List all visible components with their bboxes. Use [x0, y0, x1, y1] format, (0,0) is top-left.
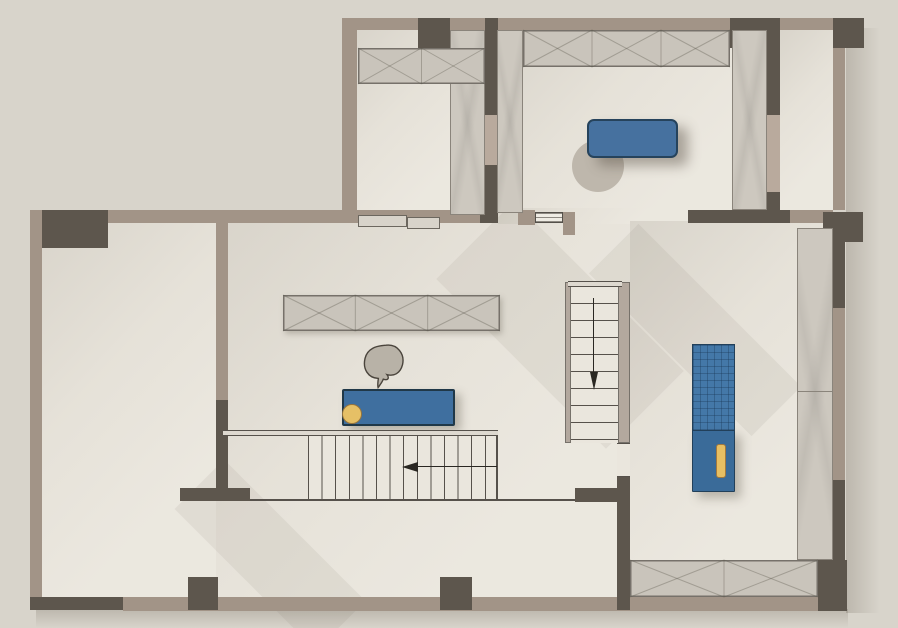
wall-left: [30, 210, 42, 610]
wall-bedroom-bottom-dark: [688, 210, 790, 223]
stair-arrow-down-line: [593, 298, 595, 374]
wall-right-upper: [833, 48, 845, 210]
stair-arrow-left-line: [416, 466, 497, 468]
stair-arrow-left: [402, 460, 497, 473]
cabinet-gym-right-divider: [798, 391, 832, 392]
wall-bottom-dark: [30, 597, 123, 610]
treadmill-belt[interactable]: [692, 344, 735, 432]
column-corner-se: [818, 560, 847, 611]
floor-plan-canvas: [0, 0, 898, 628]
wall-upper-left: [342, 18, 357, 215]
wall-right-mid-dark: [833, 242, 845, 308]
column-bottom-b: [440, 577, 472, 610]
cabinet-living[interactable]: [283, 295, 500, 331]
floor-left-room: [42, 221, 216, 598]
cabinet-cloak-top[interactable]: [358, 48, 485, 84]
door-bedroom-balcony[interactable]: [767, 115, 780, 192]
wall-stairwell-bar-dark: [575, 488, 630, 502]
stair-bottom-line: [250, 499, 575, 501]
floor-balcony: [780, 30, 833, 212]
wardrobe-bedroom-right[interactable]: [732, 30, 767, 210]
stair-arrow-left-head: [402, 462, 418, 472]
outer-shadow-right: [846, 28, 880, 613]
column-corner-ne: [833, 18, 864, 48]
wall-interior-left-dark: [216, 400, 228, 488]
stair-wall-right-upper: [618, 282, 630, 443]
wall-bedroom-balcony-upper: [767, 48, 780, 115]
wall-bedroom-balcony-lower: [767, 192, 780, 212]
sliding-panel-b[interactable]: [407, 217, 440, 229]
bed[interactable]: [587, 119, 678, 158]
column-cloak-top: [418, 18, 450, 48]
wall-right-mid-tan: [833, 308, 845, 480]
stair-arrow-down-head: [590, 372, 598, 390]
wall-interior-left-tan: [216, 223, 228, 400]
outer-shadow-bottom: [36, 609, 848, 628]
cabinet-bedroom-left[interactable]: [497, 30, 523, 213]
wall-tee-bar: [180, 488, 250, 501]
sliding-panel-a[interactable]: [358, 215, 407, 227]
cabinet-gym-bottom[interactable]: [630, 560, 818, 597]
column-bottom-a: [188, 577, 218, 610]
treadmill-console[interactable]: [692, 430, 735, 492]
stair-opening-below: [617, 443, 630, 477]
stool[interactable]: [342, 404, 362, 424]
cabinet-bedroom-top[interactable]: [523, 30, 730, 67]
door-bedroom-leaf[interactable]: [535, 212, 563, 223]
jamb-bedroom-door-right: [563, 212, 575, 235]
stair-rail-top-upper: [568, 281, 622, 287]
desk-chair[interactable]: [355, 338, 412, 396]
stair-arrow-down: [587, 298, 600, 390]
cabinet-gym-right[interactable]: [797, 228, 833, 560]
treadmill-handle: [716, 444, 726, 478]
